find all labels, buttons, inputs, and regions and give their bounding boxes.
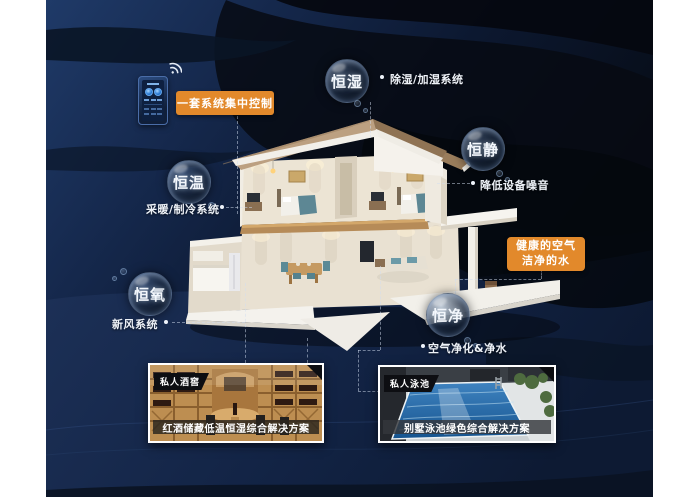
- dial-knob: [154, 88, 162, 96]
- bubble-constant-humidity: 恒湿: [325, 59, 369, 103]
- bubble-constant-temperature: 恒温: [167, 160, 211, 204]
- bullet-dot: [380, 75, 384, 79]
- wine-cellar-card: 私人酒窖 红酒储藏低温恒湿综合解决方案: [148, 363, 324, 443]
- note-humidity-system: 除湿/加湿系统: [390, 71, 464, 87]
- connector-line: [358, 350, 380, 351]
- card-tag-wine: 私人酒窖: [154, 373, 209, 390]
- connector-line: [437, 183, 470, 184]
- wifi-icon: [164, 60, 182, 76]
- connector-line: [172, 322, 245, 323]
- card-caption-pool: 别墅泳池绿色综合解决方案: [383, 420, 551, 434]
- infographic-stage: 一套系统集中控制 恒湿 恒静 恒温 恒氧 恒净 除湿/加湿系统 降低设备噪音 采…: [46, 0, 653, 497]
- card-tag-pool: 私人泳池: [384, 375, 439, 392]
- bullet-dot: [220, 205, 224, 209]
- connector-line: [358, 391, 380, 392]
- highlight-line1: 健康的空气: [516, 239, 576, 254]
- central-control-label: 一套系统集中控制: [176, 91, 274, 115]
- connector-line: [358, 350, 359, 391]
- card-caption-wine: 红酒储藏低温恒湿综合解决方案: [153, 420, 319, 434]
- mini-bubble: [120, 268, 127, 275]
- connector-line: [455, 279, 541, 280]
- connector-line: [370, 102, 371, 138]
- control-panel-screen: [142, 80, 164, 121]
- mini-bubble: [112, 276, 117, 281]
- bullet-dot: [471, 181, 475, 185]
- healthy-air-water-label: 健康的空气 洁净的水: [507, 237, 585, 271]
- note-fresh-air: 新风系统: [112, 316, 158, 332]
- note-heating-cooling: 采暖/制冷系统: [146, 201, 220, 217]
- card-corner-ribbon: [539, 367, 554, 382]
- connector-line: [237, 116, 238, 214]
- connector-line: [245, 283, 246, 363]
- bubble-constant-purity: 恒净: [426, 293, 470, 337]
- connector-line: [380, 266, 381, 350]
- pool-card: 私人泳池 别墅泳池绿色综合解决方案: [378, 365, 556, 443]
- smart-control-panel: [138, 76, 168, 125]
- highlight-line2: 洁净的水: [522, 254, 570, 269]
- card-corner-ribbon: [307, 365, 322, 380]
- mini-bubble: [496, 170, 503, 177]
- note-air-water-purification: 空气净化&净水: [428, 340, 507, 356]
- bubble-constant-oxygen: 恒氧: [128, 272, 172, 316]
- bullet-dot: [421, 344, 425, 348]
- connector-line: [226, 207, 252, 208]
- dial-knob: [145, 88, 153, 96]
- connector-line: [455, 279, 456, 294]
- mini-bubble: [354, 100, 361, 107]
- mini-bubble: [363, 108, 368, 113]
- connector-line: [307, 338, 308, 363]
- note-noise-reduction: 降低设备噪音: [480, 177, 549, 193]
- bullet-dot: [164, 320, 168, 324]
- bubble-constant-quiet: 恒静: [461, 127, 505, 171]
